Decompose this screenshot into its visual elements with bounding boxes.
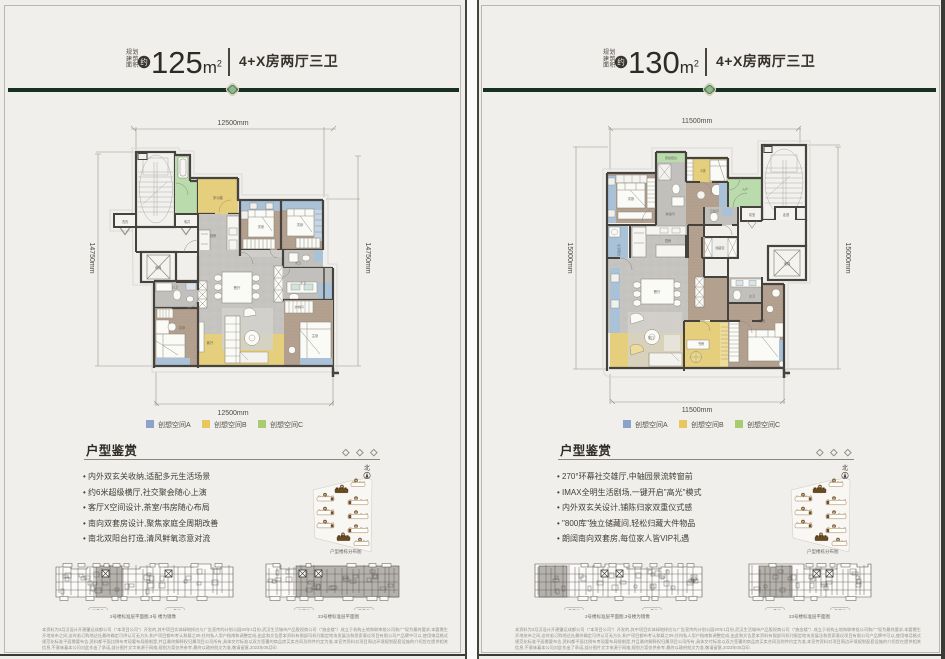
svg-text:入户: 入户 (742, 186, 748, 191)
svg-text:次卧: 次卧 (258, 224, 265, 229)
svg-text:次卫: 次卫 (295, 260, 301, 265)
svg-text:北: 北 (842, 464, 848, 472)
svg-text:一单元: 一单元 (769, 607, 781, 610)
svg-text:12500mm: 12500mm (217, 120, 248, 127)
svg-text:电井: 电井 (184, 219, 190, 224)
svg-text:家政阳台: 家政阳台 (665, 155, 677, 160)
svg-text:书房: 书房 (698, 341, 704, 346)
svg-text:次卧: 次卧 (179, 325, 186, 330)
svg-text:主卫: 主卫 (300, 280, 306, 285)
svg-text:电梯: 电梯 (155, 265, 162, 270)
svg-text:三单元: 三单元 (92, 607, 104, 610)
svg-text:走道: 走道 (783, 212, 790, 217)
svg-text:餐厅: 餐厅 (654, 289, 661, 294)
svg-text:二单元: 二单元 (568, 607, 580, 610)
svg-text:2孩: 2孩 (700, 168, 706, 173)
svg-text:三单元: 三单元 (298, 607, 310, 610)
svg-text:电梯: 电梯 (784, 261, 791, 266)
svg-text:一单元: 一单元 (169, 607, 181, 610)
svg-text:11500mm: 11500mm (682, 407, 713, 414)
svg-text:二单元: 二单元 (358, 607, 370, 610)
svg-text:餐厅: 餐厅 (234, 285, 241, 290)
svg-text:衣帽间: 衣帽间 (294, 304, 303, 309)
svg-text:15000mm: 15000mm (566, 242, 573, 273)
svg-text:客厅: 客厅 (207, 340, 214, 345)
svg-text:生活阳台: 生活阳台 (617, 244, 622, 256)
svg-text:北: 北 (364, 464, 370, 472)
svg-text:公卫: 公卫 (172, 285, 178, 289)
svg-text:洗衣: 洗衣 (122, 219, 129, 224)
svg-text:次卧: 次卧 (297, 222, 304, 227)
svg-text:次卧: 次卧 (628, 196, 635, 201)
svg-text:一单元: 一单元 (646, 607, 658, 610)
svg-text:12500mm: 12500mm (217, 410, 248, 417)
svg-text:卫生间: 卫生间 (709, 208, 718, 213)
svg-text:15000mm: 15000mm (844, 242, 851, 273)
svg-text:厨房: 厨房 (665, 238, 671, 243)
svg-text:厨房: 厨房 (210, 233, 216, 238)
svg-text:主卫: 主卫 (749, 293, 755, 298)
svg-text:二单元: 二单元 (834, 607, 846, 610)
svg-text:11500mm: 11500mm (682, 118, 713, 125)
svg-text:14750mm: 14750mm (364, 242, 371, 273)
svg-text:淋浴间: 淋浴间 (665, 211, 674, 216)
svg-text:多功能: 多功能 (213, 195, 224, 200)
svg-text:茶几: 茶几 (648, 335, 655, 340)
svg-text:14750mm: 14750mm (88, 242, 95, 273)
svg-text:前室: 前室 (749, 212, 755, 217)
svg-text:储藏室: 储藏室 (715, 245, 724, 250)
svg-text:主卧: 主卧 (312, 333, 319, 338)
